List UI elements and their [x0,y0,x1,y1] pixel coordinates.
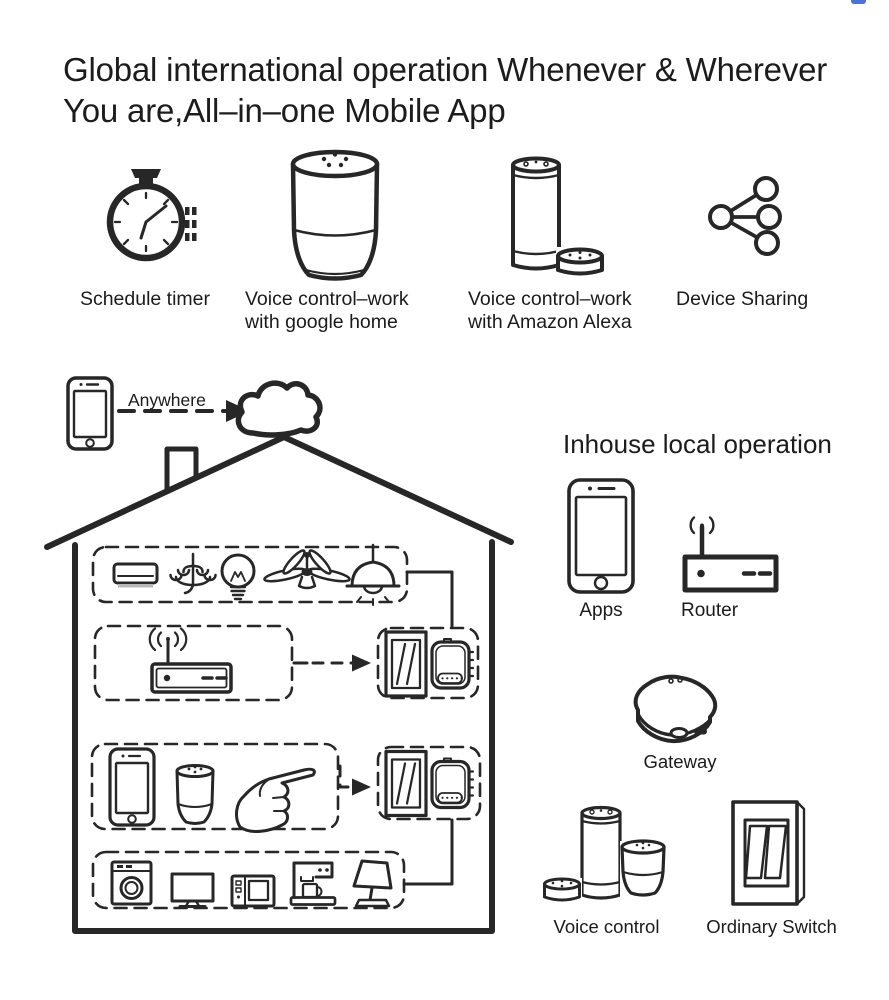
ceiling-fan-icon [264,548,351,588]
dashed-group-boxes [92,547,480,908]
gateway-icon [636,677,716,741]
schedule-timer-icon [110,169,197,258]
light-bulb-icon [222,555,254,599]
anywhere-arrow [119,400,250,422]
timer-side-marks [185,207,197,241]
google-home-icon [293,152,377,279]
smart-switch-infographic: Global international operation Whenever … [0,0,889,1000]
control-arrowhead [352,779,371,796]
apps-phone-icon [569,480,633,592]
house-router-icon [150,629,231,693]
connector-lines [294,572,452,884]
indoor-speaker-icon [177,766,213,824]
tv-icon [172,874,213,907]
remote-phone-icon [68,378,112,449]
coffee-maker-icon [291,863,335,905]
hand-touch-icon [237,769,315,831]
local-router-icon [685,518,776,591]
smart-switch-and-module-2 [386,752,473,816]
infographic-artwork [0,0,889,1000]
pendant-lamp-icon [347,545,399,605]
smart-switch-and-module [386,632,473,696]
device-sharing-icon [710,178,780,254]
ordinary-switch-icon [733,802,804,904]
amazon-alexa-icon [513,159,604,274]
washing-machine-icon [112,862,151,904]
indoor-phone-icon [110,749,154,825]
air-conditioner-icon [114,564,157,588]
microwave-icon [232,876,274,906]
voice-control-speakers-icon [542,808,666,903]
router-arrowhead [352,655,371,672]
table-lamp-icon [354,861,391,906]
chandelier-icon [171,554,216,593]
cloud-icon [238,383,320,435]
